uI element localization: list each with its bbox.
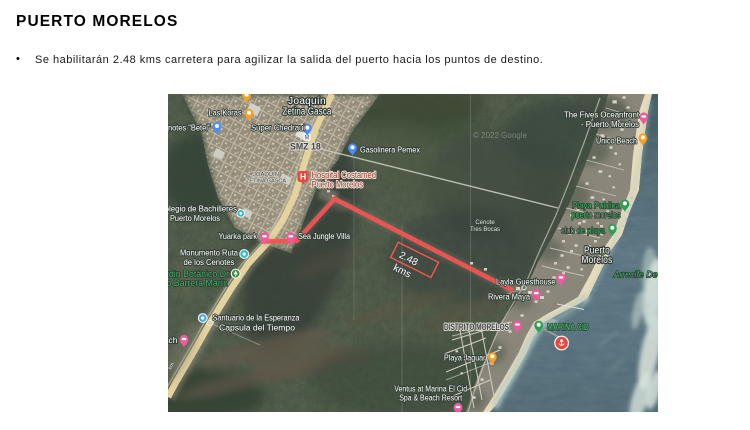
svg-text:Tres Bocas: Tres Bocas — [470, 227, 500, 233]
svg-text:Playa Jaguar: Playa Jaguar — [444, 353, 486, 363]
svg-text:Santuario de la Esperanza: Santuario de la Esperanza — [213, 313, 300, 323]
svg-text:club de playa: club de playa — [561, 226, 605, 236]
svg-text:Rivera Maya: Rivera Maya — [488, 292, 530, 302]
svg-text:JOAQUÍN: JOAQUÍN — [253, 171, 279, 178]
svg-text:Beach: Beach — [168, 335, 178, 345]
svg-text:Monumento Ruta: Monumento Ruta — [180, 248, 238, 258]
svg-text:Layla Guesthouse: Layla Guesthouse — [496, 277, 556, 287]
svg-text:Spa & Beach Resort: Spa & Beach Resort — [399, 393, 462, 403]
svg-text:Capsula del Tiempo: Capsula del Tiempo — [219, 323, 295, 333]
svg-text:DISTRITO MORELOS: DISTRITO MORELOS — [444, 322, 509, 332]
svg-text:Sea Jungle Villa: Sea Jungle Villa — [298, 231, 350, 241]
svg-text:Unico Beach: Unico Beach — [596, 136, 637, 146]
svg-text:Hospital Costamed: Hospital Costamed — [312, 170, 377, 180]
svg-text:Morelos: Morelos — [582, 255, 613, 266]
svg-text:- Puerto Morelos: - Puerto Morelos — [581, 119, 639, 129]
svg-text:Super Chedraui: Super Chedraui — [251, 123, 305, 133]
svg-text:ZETINA GASCA: ZETINA GASCA — [246, 179, 287, 185]
svg-text:puerto morelos: puerto morelos — [572, 210, 621, 220]
svg-text:M: M — [305, 135, 310, 141]
svg-text:Arrecife De Coral: Arrecife De Coral — [613, 270, 659, 280]
svg-text:H: H — [300, 172, 306, 182]
svg-text:© 2022 Google: © 2022 Google — [473, 130, 527, 140]
svg-text:Colegio de Bachilleres: Colegio de Bachilleres — [168, 204, 237, 214]
svg-text:SMZ 18: SMZ 18 — [290, 142, 321, 152]
svg-text:The Fives Oceanfront: The Fives Oceanfront — [564, 110, 640, 120]
svg-text:Puerto Morelos: Puerto Morelos — [170, 213, 220, 223]
svg-text:MARINA CID: MARINA CID — [547, 322, 589, 332]
svg-text:Cenote: Cenote — [475, 220, 495, 226]
svg-text:Alfredo Barrera Marín: Alfredo Barrera Marín — [168, 278, 228, 288]
svg-text:Playa Publica: Playa Publica — [572, 201, 620, 211]
svg-text:Yuarka park: Yuarka park — [219, 231, 258, 241]
svg-text:de los Cenotes: de los Cenotes — [184, 257, 235, 267]
svg-text:Puerto Morelos: Puerto Morelos — [312, 180, 364, 190]
svg-text:Joaquín: Joaquín — [288, 96, 326, 107]
svg-text:Gasolinera Pemex: Gasolinera Pemex — [360, 145, 421, 155]
svg-text:Zetina Gasca: Zetina Gasca — [283, 107, 332, 118]
svg-text:Las Koras: Las Koras — [209, 108, 242, 118]
svg-text:Cenotes "Betel": Cenotes "Betel" — [168, 123, 211, 133]
